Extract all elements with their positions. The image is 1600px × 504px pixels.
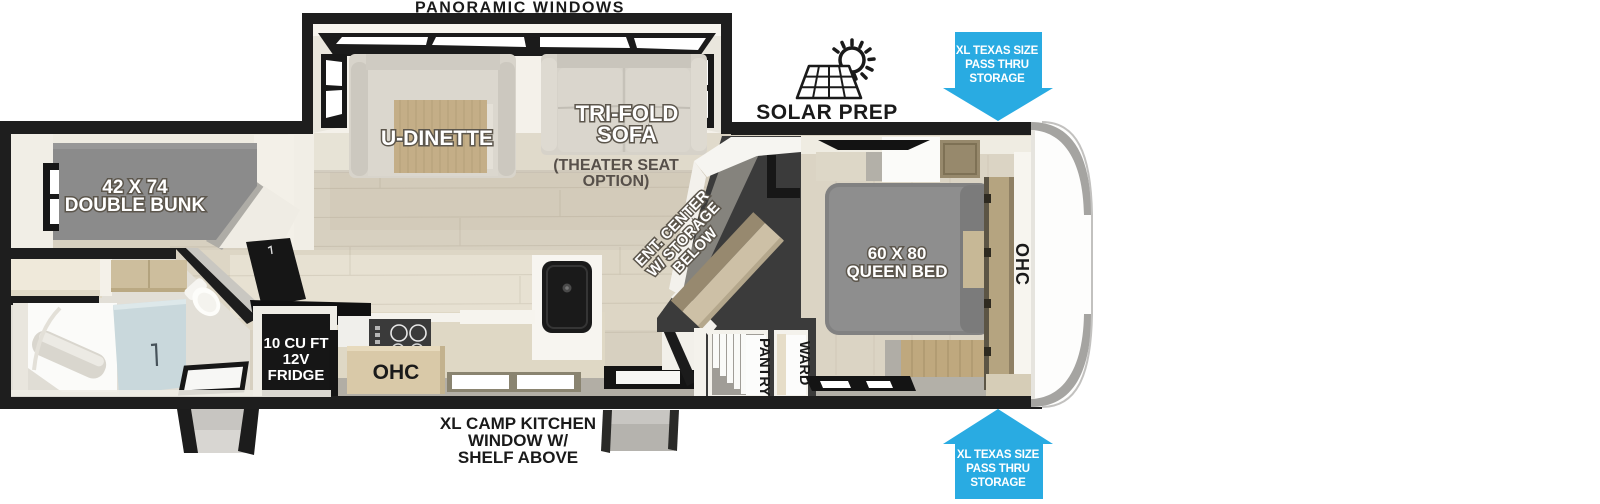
- svg-text:PANTRY: PANTRY: [756, 338, 772, 396]
- svg-text:60 X 80: 60 X 80: [868, 244, 927, 263]
- svg-text:SOFA: SOFA: [597, 122, 657, 147]
- svg-text:DOUBLE BUNK: DOUBLE BUNK: [65, 195, 206, 216]
- svg-text:PASS THRU: PASS THRU: [966, 463, 1030, 475]
- svg-text:FRIDGE: FRIDGE: [268, 367, 325, 384]
- svg-text:OPTION): OPTION): [583, 173, 650, 190]
- svg-text:SHELF ABOVE: SHELF ABOVE: [458, 448, 578, 467]
- svg-text:(THEATER SEAT: (THEATER SEAT: [553, 157, 679, 174]
- svg-text:10 CU FT: 10 CU FT: [263, 335, 328, 352]
- svg-text:SOLAR PREP: SOLAR PREP: [756, 101, 898, 124]
- svg-text:U-DINETTE: U-DINETTE: [381, 127, 493, 150]
- svg-text:OHC: OHC: [1012, 243, 1032, 286]
- svg-text:QUEEN BED: QUEEN BED: [846, 262, 947, 281]
- svg-text:STORAGE: STORAGE: [970, 477, 1026, 489]
- svg-text:PASS THRU: PASS THRU: [965, 59, 1029, 71]
- svg-text:PANORAMIC WINDOWS: PANORAMIC WINDOWS: [415, 0, 625, 17]
- svg-text:XL TEXAS SIZE: XL TEXAS SIZE: [956, 45, 1039, 57]
- svg-text:STORAGE: STORAGE: [969, 73, 1025, 85]
- svg-text:XL TEXAS SIZE: XL TEXAS SIZE: [957, 449, 1040, 461]
- svg-text:OHC: OHC: [373, 361, 420, 384]
- svg-text:12V: 12V: [283, 351, 310, 368]
